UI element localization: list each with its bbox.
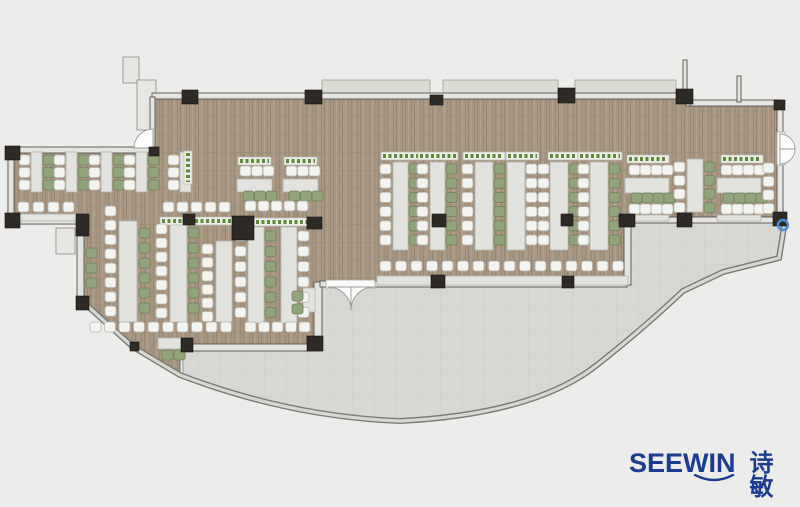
chair <box>105 306 116 316</box>
desk-table <box>170 221 187 322</box>
chair <box>745 193 756 203</box>
chair <box>489 261 500 271</box>
chair <box>188 303 199 313</box>
chair <box>578 178 589 188</box>
chair <box>763 177 774 187</box>
seewin-wordmark: SEEWIN <box>629 450 736 477</box>
chair <box>417 221 428 231</box>
chair <box>124 155 135 165</box>
chair <box>526 192 537 202</box>
chair <box>265 292 276 302</box>
chair <box>442 261 453 271</box>
chair <box>494 192 505 202</box>
chair <box>266 191 277 201</box>
chair <box>721 204 732 214</box>
chair <box>168 180 179 190</box>
chair <box>177 322 188 332</box>
chair <box>156 224 167 234</box>
chair <box>535 261 546 271</box>
chair <box>265 246 276 256</box>
structural-column <box>5 213 20 228</box>
chair <box>538 235 549 245</box>
chair <box>629 165 640 175</box>
chair <box>245 322 256 332</box>
desk-table <box>136 152 147 192</box>
chair <box>417 178 428 188</box>
chair <box>156 280 167 290</box>
structural-column <box>5 146 20 160</box>
chair <box>177 202 188 212</box>
chair <box>309 166 320 176</box>
chair <box>640 165 651 175</box>
chair <box>380 261 391 271</box>
chair <box>105 263 116 273</box>
brand-cjk-text: 诗敏 <box>750 452 800 500</box>
chair <box>33 202 44 212</box>
chair <box>240 166 251 176</box>
chair <box>162 350 173 360</box>
chair <box>43 168 54 178</box>
chair <box>188 258 199 268</box>
chair <box>163 202 174 212</box>
chair <box>298 246 309 256</box>
chair <box>192 322 203 332</box>
chair <box>578 207 589 217</box>
chair <box>526 207 537 217</box>
chair <box>86 248 97 258</box>
wall <box>8 147 154 153</box>
desk-table <box>237 179 272 192</box>
chair <box>609 192 620 202</box>
chair <box>473 261 484 271</box>
chair <box>134 322 145 332</box>
canopy <box>322 80 430 94</box>
chair <box>446 192 457 202</box>
chair <box>298 262 309 272</box>
chair <box>732 165 743 175</box>
structural-column <box>232 216 254 240</box>
structural-column <box>307 217 322 229</box>
structural-column <box>430 95 443 105</box>
chair <box>380 192 391 202</box>
chair <box>494 178 505 188</box>
chair <box>446 178 457 188</box>
chair <box>609 164 620 174</box>
chair <box>139 228 150 238</box>
chair <box>89 168 100 178</box>
chair <box>18 202 29 212</box>
chair <box>609 235 620 245</box>
chair <box>202 298 213 308</box>
chair <box>704 162 715 172</box>
desk-table <box>393 162 408 250</box>
chair <box>566 261 577 271</box>
structural-column <box>431 275 445 288</box>
chair <box>551 261 562 271</box>
chair <box>156 308 167 318</box>
chair <box>312 191 323 201</box>
chair <box>221 322 232 332</box>
chair <box>105 249 116 259</box>
chair <box>578 221 589 231</box>
chair <box>734 193 745 203</box>
chair <box>286 322 297 332</box>
chair <box>63 202 74 212</box>
chair <box>78 155 89 165</box>
structural-column <box>183 214 195 225</box>
chair <box>105 322 116 332</box>
chair <box>664 193 675 203</box>
chair <box>462 192 473 202</box>
chair <box>538 207 549 217</box>
chair <box>578 192 589 202</box>
chair <box>124 180 135 190</box>
chair <box>265 277 276 287</box>
chair <box>301 191 312 201</box>
chair <box>458 261 469 271</box>
chair <box>609 207 620 217</box>
chair <box>640 204 651 214</box>
chair <box>235 262 246 272</box>
chair <box>202 312 213 322</box>
chair <box>674 203 685 213</box>
desk-table <box>158 338 182 349</box>
chair <box>538 164 549 174</box>
chair <box>188 288 199 298</box>
desk-table <box>430 162 445 250</box>
chair <box>292 291 303 301</box>
structural-column <box>182 90 198 104</box>
desk-table <box>31 152 42 192</box>
chair <box>609 221 620 231</box>
structural-column <box>149 147 159 156</box>
chair <box>662 165 673 175</box>
chair <box>19 180 30 190</box>
chair <box>205 202 216 212</box>
chair <box>297 201 308 211</box>
chair <box>446 221 457 231</box>
chair <box>582 261 593 271</box>
structural-column <box>562 276 574 288</box>
chair <box>139 303 150 313</box>
chair <box>119 322 130 332</box>
chair <box>462 221 473 231</box>
door-leaf <box>780 149 795 164</box>
chair <box>235 308 246 318</box>
chair <box>54 168 65 178</box>
chair <box>19 155 30 165</box>
chair <box>48 202 59 212</box>
chair <box>578 164 589 174</box>
chair <box>19 168 30 178</box>
chair <box>90 322 101 332</box>
chair <box>113 180 124 190</box>
chair <box>462 207 473 217</box>
chair <box>139 288 150 298</box>
desk-table <box>590 162 608 250</box>
desk-table <box>475 162 493 250</box>
chair <box>286 166 297 176</box>
chair <box>651 165 662 175</box>
structural-column <box>676 89 693 104</box>
wall <box>690 100 782 106</box>
chair <box>662 204 673 214</box>
desk-table <box>625 178 669 193</box>
chair <box>578 235 589 245</box>
chair <box>380 207 391 217</box>
chair <box>380 178 391 188</box>
chair <box>105 235 116 245</box>
desk-table <box>119 221 137 322</box>
chair <box>446 207 457 217</box>
chair <box>743 165 754 175</box>
chair <box>263 166 274 176</box>
structural-column <box>305 90 322 104</box>
chair <box>721 165 732 175</box>
chair <box>219 202 230 212</box>
chair <box>113 168 124 178</box>
chair <box>252 166 263 176</box>
chair <box>380 235 391 245</box>
chair <box>417 235 428 245</box>
desk-table <box>507 162 525 250</box>
chair <box>148 322 159 332</box>
desk-table <box>377 276 628 285</box>
floorplan-canvas <box>0 0 800 507</box>
chair <box>380 221 391 231</box>
desk-table <box>248 227 264 323</box>
door-leaf <box>780 134 795 149</box>
chair <box>299 322 310 332</box>
structural-column <box>558 88 575 103</box>
chair <box>462 235 473 245</box>
chair <box>526 164 537 174</box>
chair <box>156 266 167 276</box>
chair <box>642 193 653 203</box>
exterior-structure <box>56 228 75 254</box>
chair <box>380 164 391 174</box>
structural-column <box>130 342 139 351</box>
chair <box>609 178 620 188</box>
chair <box>148 168 159 178</box>
structural-column <box>561 214 573 226</box>
chair <box>538 178 549 188</box>
desk-table <box>717 178 761 193</box>
chair <box>417 192 428 202</box>
chair <box>124 168 135 178</box>
chair <box>202 258 213 268</box>
chair <box>188 243 199 253</box>
chair <box>763 190 774 200</box>
chair <box>292 304 303 314</box>
chair <box>202 285 213 295</box>
chair <box>54 155 65 165</box>
chair <box>265 308 276 318</box>
chair <box>188 273 199 283</box>
structural-column <box>181 338 193 352</box>
chair <box>653 193 664 203</box>
chair <box>235 246 246 256</box>
chair <box>245 201 256 211</box>
chair <box>43 155 54 165</box>
chair <box>235 277 246 287</box>
chair <box>494 207 505 217</box>
chair <box>704 189 715 199</box>
desk-table <box>687 159 703 212</box>
chair <box>265 231 276 241</box>
chair <box>289 191 300 201</box>
chair <box>265 262 276 272</box>
chair <box>631 193 642 203</box>
chair <box>202 271 213 281</box>
wall <box>186 344 320 351</box>
chair <box>156 252 167 262</box>
chair <box>520 261 531 271</box>
chair <box>54 180 65 190</box>
chair <box>168 168 179 178</box>
chair <box>43 180 54 190</box>
chair <box>235 292 246 302</box>
chair <box>597 261 608 271</box>
chair <box>651 204 662 214</box>
structural-column <box>76 214 89 236</box>
chair <box>113 155 124 165</box>
chair <box>191 202 202 212</box>
chair <box>156 294 167 304</box>
canopy <box>443 80 558 94</box>
chair <box>504 261 515 271</box>
chair <box>284 201 295 211</box>
chair <box>139 258 150 268</box>
chair <box>674 189 685 199</box>
chair <box>105 220 116 230</box>
chair <box>258 201 269 211</box>
chair <box>526 178 537 188</box>
desk-table <box>101 152 112 192</box>
structural-column <box>677 213 692 227</box>
chair <box>743 204 754 214</box>
chair <box>538 221 549 231</box>
chair <box>494 235 505 245</box>
structural-column <box>773 212 787 226</box>
chair <box>148 155 159 165</box>
structural-column <box>76 296 89 310</box>
desk-table <box>66 152 77 192</box>
chair <box>105 206 116 216</box>
canopy <box>575 80 676 94</box>
chair <box>446 164 457 174</box>
desk-table <box>16 214 78 221</box>
chair <box>704 203 715 213</box>
chair <box>168 155 179 165</box>
chair <box>462 164 473 174</box>
chair <box>78 168 89 178</box>
desk-table <box>283 179 318 192</box>
chair <box>156 238 167 248</box>
chair <box>723 193 734 203</box>
chair <box>89 155 100 165</box>
wall <box>737 76 741 102</box>
seewin-logo: SEEWIN 诗敏 <box>629 450 800 500</box>
chair <box>446 235 457 245</box>
door-leaf <box>134 129 153 148</box>
chair <box>105 292 116 302</box>
desk-table <box>717 215 761 221</box>
chair <box>202 244 213 254</box>
chair <box>105 278 116 288</box>
chair <box>763 163 774 173</box>
chair <box>462 178 473 188</box>
chair <box>89 180 100 190</box>
chair <box>188 228 199 238</box>
chair <box>139 273 150 283</box>
chair <box>613 261 624 271</box>
chair <box>526 235 537 245</box>
chair <box>259 322 270 332</box>
chair <box>674 162 685 172</box>
chair <box>494 164 505 174</box>
chair <box>704 176 715 186</box>
structural-column <box>432 214 446 227</box>
chair <box>763 204 774 214</box>
chair <box>272 322 283 332</box>
chair <box>243 191 254 201</box>
wall <box>152 93 690 99</box>
chair <box>674 176 685 186</box>
chair <box>417 164 428 174</box>
chair <box>411 261 422 271</box>
structural-column <box>307 336 323 351</box>
chair <box>538 192 549 202</box>
chair <box>78 180 89 190</box>
desk-table <box>550 162 568 250</box>
chair <box>206 322 217 332</box>
chair <box>427 261 438 271</box>
wall <box>624 221 631 285</box>
wall <box>777 163 783 214</box>
structural-column <box>774 100 785 110</box>
chair <box>86 263 97 273</box>
chair <box>494 221 505 231</box>
chair <box>629 204 640 214</box>
chair <box>396 261 407 271</box>
chair <box>298 231 309 241</box>
chair <box>271 201 282 211</box>
chair <box>86 278 97 288</box>
chair <box>298 277 309 287</box>
logo-swoosh-icon <box>693 474 735 484</box>
chair <box>148 180 159 190</box>
chair <box>526 221 537 231</box>
exterior-structure <box>123 57 139 83</box>
chair <box>732 204 743 214</box>
chair <box>417 207 428 217</box>
floorplan-page: SEEWIN 诗敏 <box>0 0 800 507</box>
chair <box>139 243 150 253</box>
structural-column <box>619 214 635 227</box>
chair <box>163 322 174 332</box>
chair <box>255 191 266 201</box>
chair <box>298 166 309 176</box>
desk-table <box>216 241 232 322</box>
